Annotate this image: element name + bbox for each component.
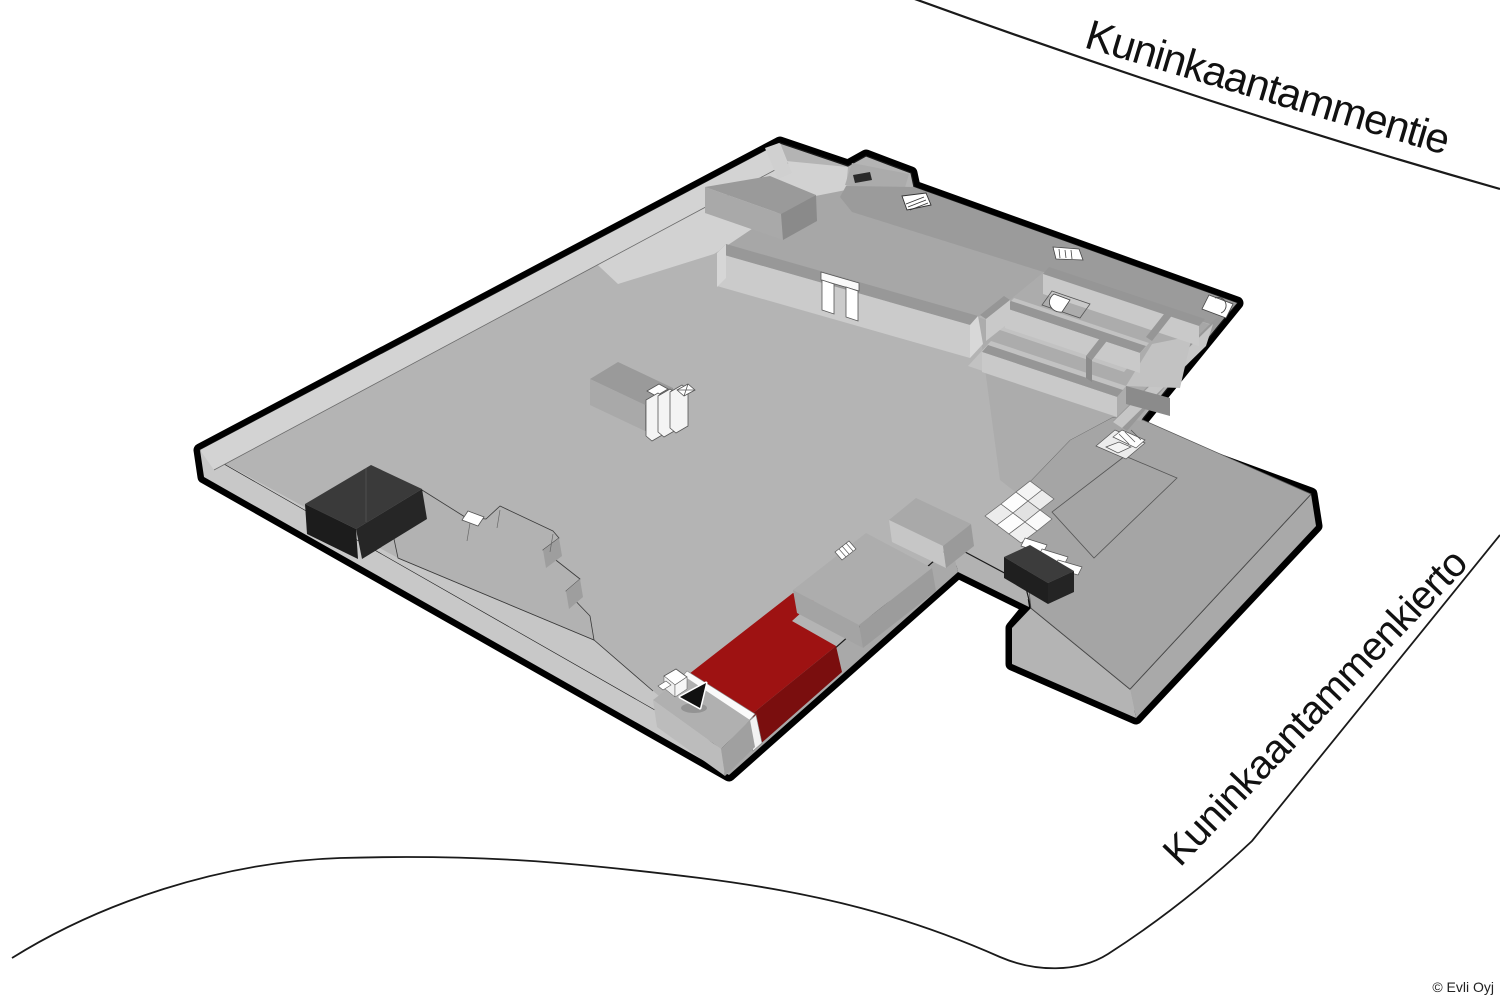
svg-text:Kuninkaantammentie: Kuninkaantammentie <box>1080 11 1454 164</box>
svg-text:© Evli Oyj: © Evli Oyj <box>1432 979 1494 995</box>
